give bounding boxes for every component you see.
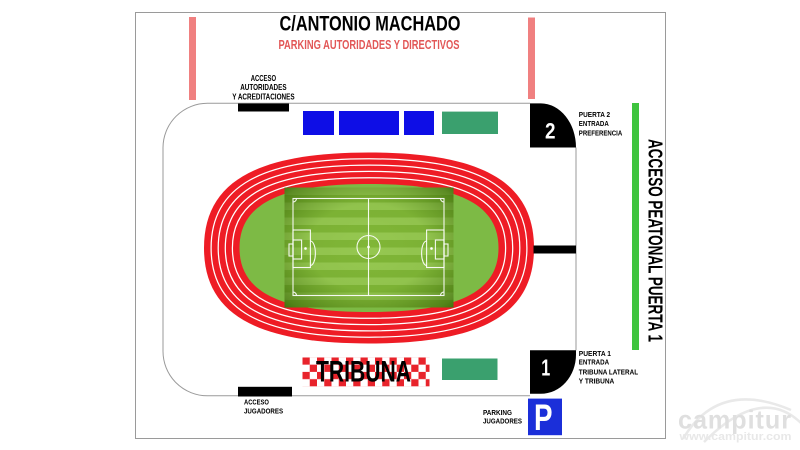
svg-text:TRIBUNA LATERAL: TRIBUNA LATERAL: [579, 368, 639, 377]
svg-text:P: P: [534, 396, 553, 438]
svg-text:www.campitur.com: www.campitur.com: [678, 431, 791, 443]
svg-text:1: 1: [541, 355, 550, 381]
svg-text:PUERTA 1: PUERTA 1: [579, 349, 611, 358]
svg-text:TRIBUNA: TRIBUNA: [316, 356, 411, 389]
svg-text:ACCESO PEATONAL PUERTA 1: ACCESO PEATONAL PUERTA 1: [644, 139, 667, 342]
svg-text:ENTRADA: ENTRADA: [579, 119, 609, 128]
svg-text:campitur: campitur: [678, 405, 792, 435]
svg-text:JUGADORES: JUGADORES: [483, 417, 522, 426]
svg-text:PARKING AUTORIDADES Y DIRECTIV: PARKING AUTORIDADES Y DIRECTIVOS: [279, 38, 460, 52]
svg-text:ENTRADA: ENTRADA: [579, 358, 609, 367]
svg-text:JUGADORES: JUGADORES: [244, 407, 283, 416]
svg-text:C/ANTONIO MACHADO: C/ANTONIO MACHADO: [280, 12, 461, 36]
svg-text:Y ACREDITACIONES: Y ACREDITACIONES: [232, 92, 295, 102]
svg-text:ACCESO: ACCESO: [244, 397, 269, 406]
svg-text:Y TRIBUNA: Y TRIBUNA: [579, 376, 615, 385]
svg-text:PREFERENCIA: PREFERENCIA: [579, 129, 622, 138]
svg-text:PUERTA 2: PUERTA 2: [579, 110, 610, 119]
svg-text:2: 2: [545, 118, 556, 143]
